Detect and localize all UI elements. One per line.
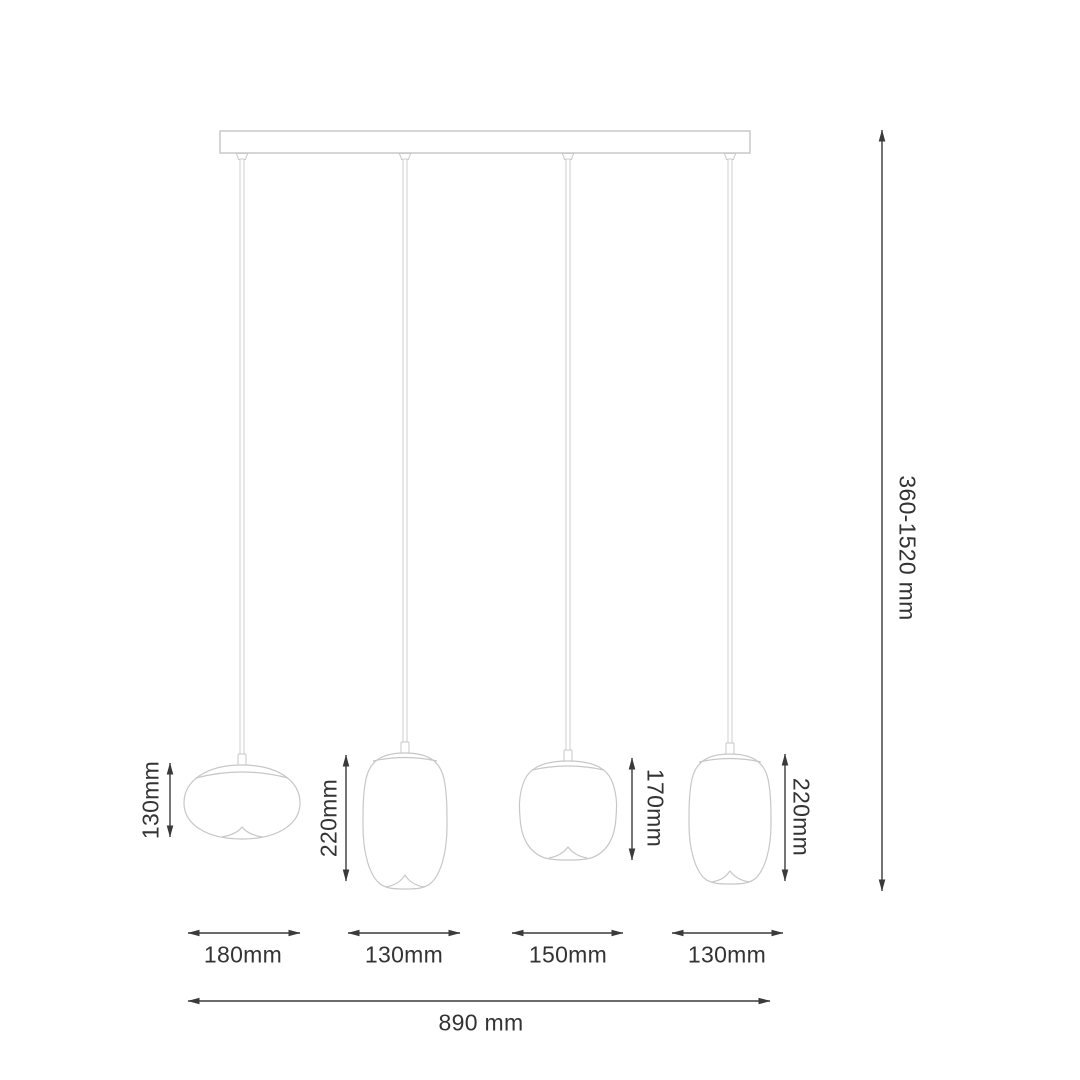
label-height-pendant-2: 220mm [318,779,341,857]
label-overall-width: 890 mm [439,1012,524,1035]
ceiling-bar [220,131,750,153]
socket-1 [238,754,246,765]
cord-3 [566,159,570,751]
label-width-pendant-2: 130mm [365,944,443,967]
label-width-pendant-4: 130mm [688,944,766,967]
label-overall-height: 360-1520 mm [896,475,919,620]
cord-connectors [236,154,736,160]
label-height-pendant-1: 130mm [140,761,163,839]
pendant-shades [184,753,771,889]
pendant-shade-1 [184,765,300,839]
pendant-shade-4 [689,754,771,884]
lamp-sockets [238,742,734,765]
cord-1 [240,159,244,755]
cord-2 [403,159,407,743]
pendant-light-dimension-diagram: 130mm 220mm 170mm 220mm 360-1520 mm 180m… [0,0,1080,1080]
label-width-pendant-1: 180mm [204,944,282,967]
socket-2 [401,742,409,753]
socket-4 [726,743,734,754]
dimension-lines [170,130,882,1001]
label-width-pendant-3: 150mm [529,944,607,967]
suspension-cords [240,159,732,755]
label-height-pendant-4: 220mm [790,778,813,856]
pendant-shade-2 [363,753,447,889]
pendant-shade-3 [519,761,616,860]
socket-3 [564,750,572,761]
cord-4 [728,159,732,744]
label-height-pendant-3: 170mm [644,769,667,847]
